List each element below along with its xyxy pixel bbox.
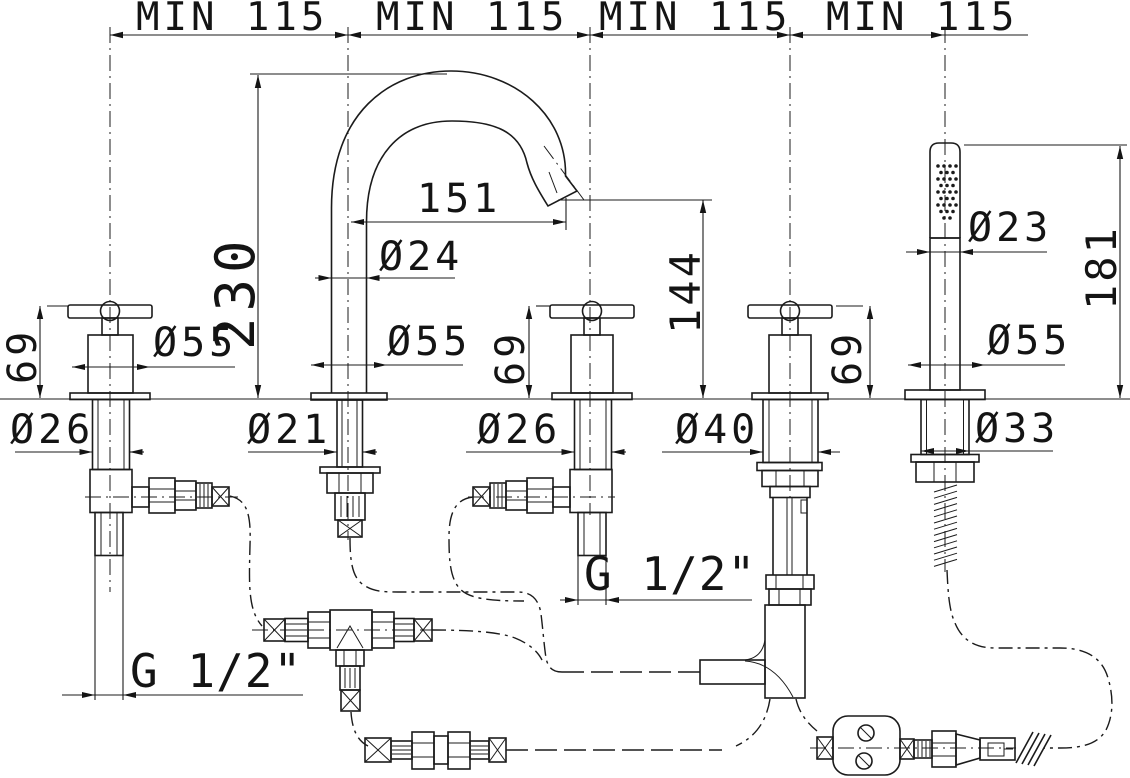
check-valve-assembly (817, 716, 1051, 775)
diverter-valve (700, 302, 832, 699)
dim-label-right-handle-height: 69 (488, 330, 534, 386)
dim-label-right-thread: G 1/2" (584, 547, 756, 601)
top-dimension-chain: MIN 115 MIN 115 MIN 115 MIN 115 (110, 0, 1028, 40)
dim-label-left-handle-stem: Ø26 (10, 407, 94, 453)
dim-label-diverter-body: Ø40 (675, 407, 759, 453)
dim-label-spout-tube: Ø24 (379, 234, 463, 280)
spout (311, 71, 584, 537)
dim-label-outlet-height: 144 (661, 249, 710, 334)
dim-label-handshower-head: Ø23 (968, 205, 1052, 251)
dim-label-spout-tail: Ø21 (247, 407, 331, 453)
dim-label-diverter-height: 69 (825, 330, 871, 386)
dim-label-min115-1: MIN 115 (136, 0, 328, 40)
spout-dimensions: 230 151 Ø24 Ø55 Ø21 144 (204, 74, 712, 455)
dim-label-handshower-base: Ø55 (987, 318, 1071, 364)
dim-label-left-thread: G 1/2" (130, 644, 302, 698)
dim-label-spout-base: Ø55 (387, 319, 471, 365)
centerlines (85, 27, 1016, 748)
dim-label-spout-height: 230 (204, 234, 267, 350)
dim-label-right-handle-stem: Ø26 (477, 407, 561, 453)
technical-drawing-sheet: MIN 115 MIN 115 MIN 115 MIN 115 69 Ø55 (0, 0, 1130, 778)
inline-union (365, 732, 506, 769)
faucet-installation-drawing: MIN 115 MIN 115 MIN 115 MIN 115 69 Ø55 (0, 0, 1130, 778)
spray-dots (936, 164, 958, 220)
dim-label-handshower-nut: Ø33 (975, 406, 1059, 452)
dim-label-min115-4: MIN 115 (826, 0, 1018, 40)
dim-label-min115-3: MIN 115 (599, 0, 791, 40)
dim-label-min115-2: MIN 115 (376, 0, 568, 40)
dim-label-left-handle-height: 69 (0, 328, 46, 384)
dim-label-spout-reach: 151 (417, 176, 501, 222)
dim-label-handshower-height: 181 (1077, 225, 1126, 310)
